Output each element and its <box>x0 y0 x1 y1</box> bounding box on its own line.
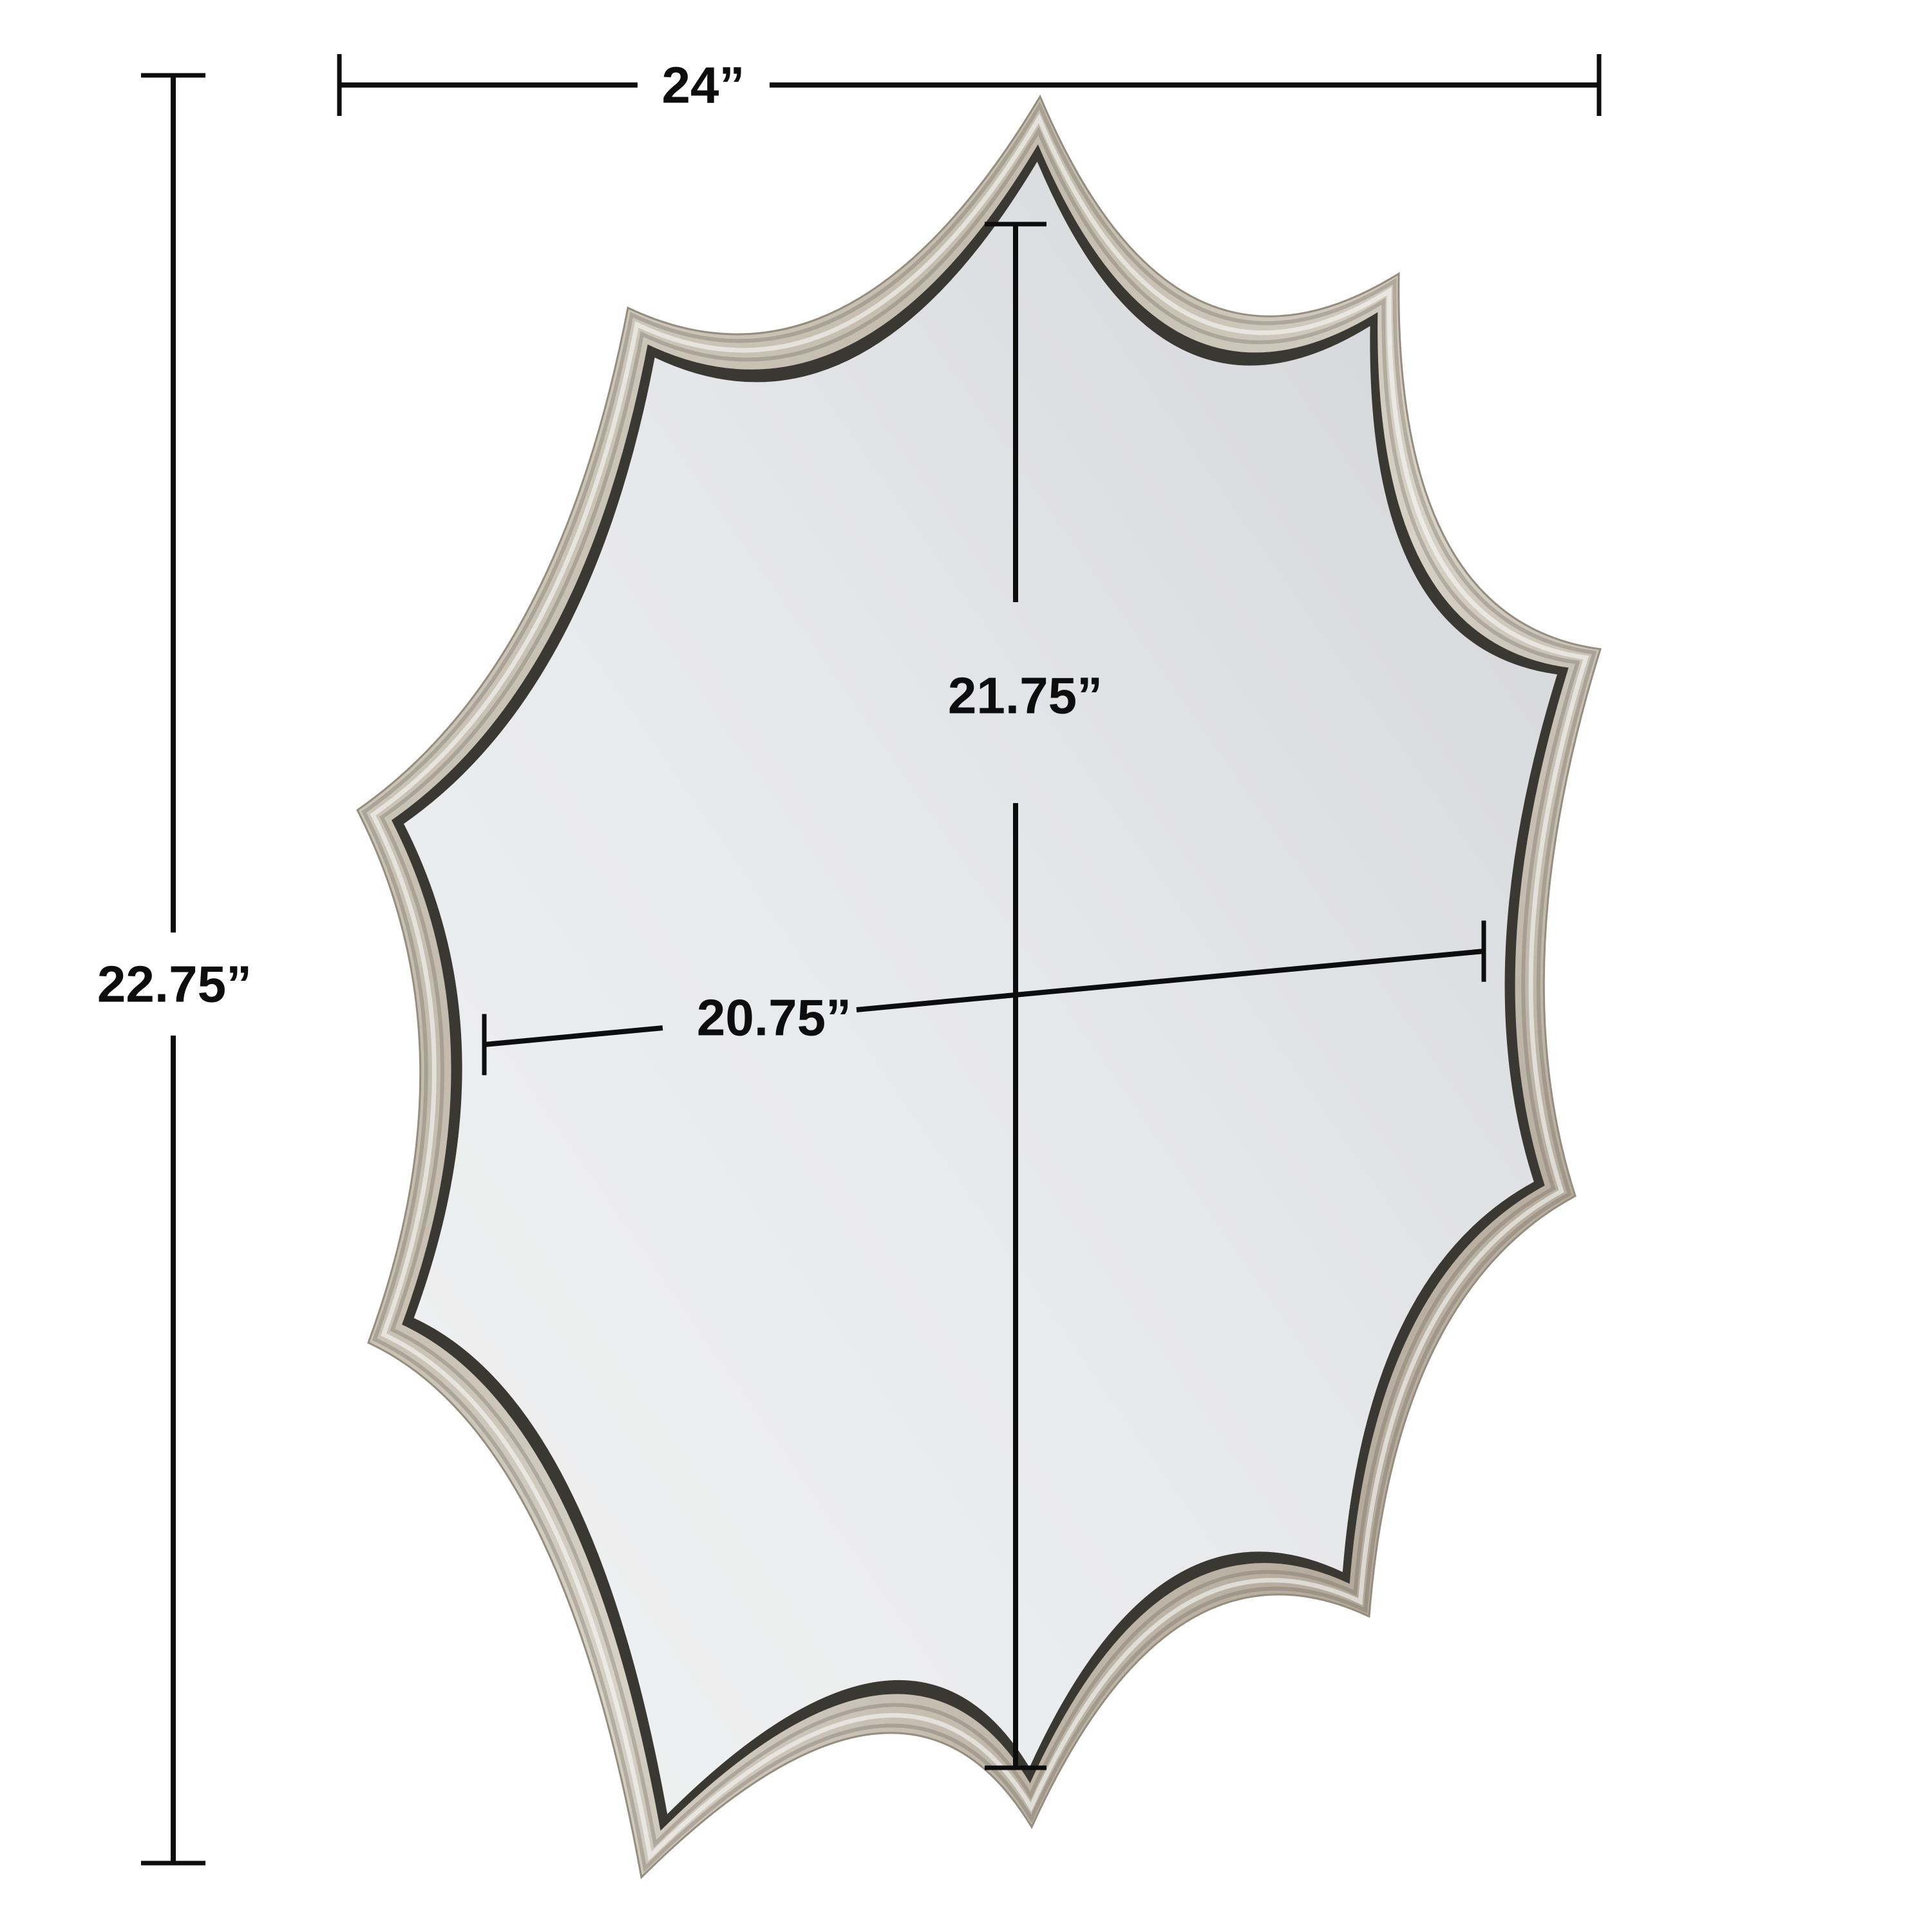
dimension-overall-width: 24” <box>339 54 1599 116</box>
product-dimension-diagram: 24”22.75”21.75”20.75” <box>0 0 1932 1932</box>
dimension-label-mirror-glass-width: 20.75” <box>697 989 851 1046</box>
mirror <box>357 97 1600 1877</box>
dimension-label-overall-height: 22.75” <box>97 956 252 1013</box>
dimension-label-overall-width: 24” <box>662 57 745 114</box>
diagram-canvas: 24”22.75”21.75”20.75” <box>0 0 1932 1932</box>
dimension-overall-height: 22.75” <box>97 75 252 1863</box>
dimension-label-mirror-glass-height: 21.75” <box>948 667 1103 724</box>
